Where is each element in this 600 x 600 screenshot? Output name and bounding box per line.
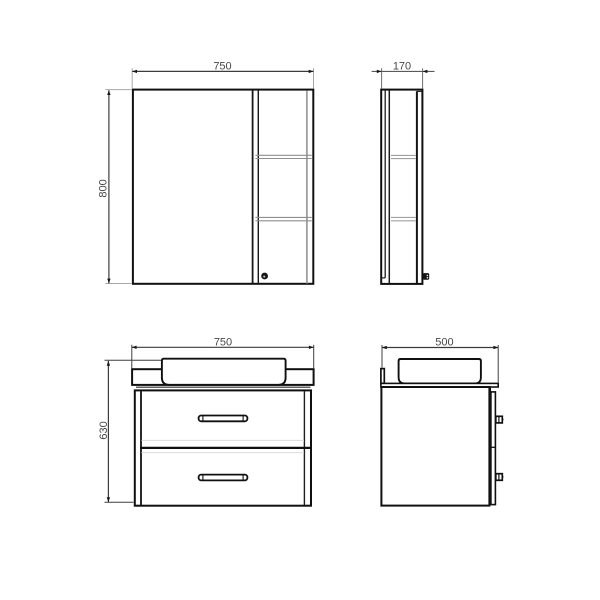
svg-text:170: 170 <box>393 61 411 73</box>
svg-text:800: 800 <box>98 179 110 197</box>
svg-text:750: 750 <box>213 61 231 73</box>
svg-text:500: 500 <box>435 337 453 349</box>
svg-text:750: 750 <box>214 337 232 349</box>
svg-text:630: 630 <box>98 421 110 439</box>
